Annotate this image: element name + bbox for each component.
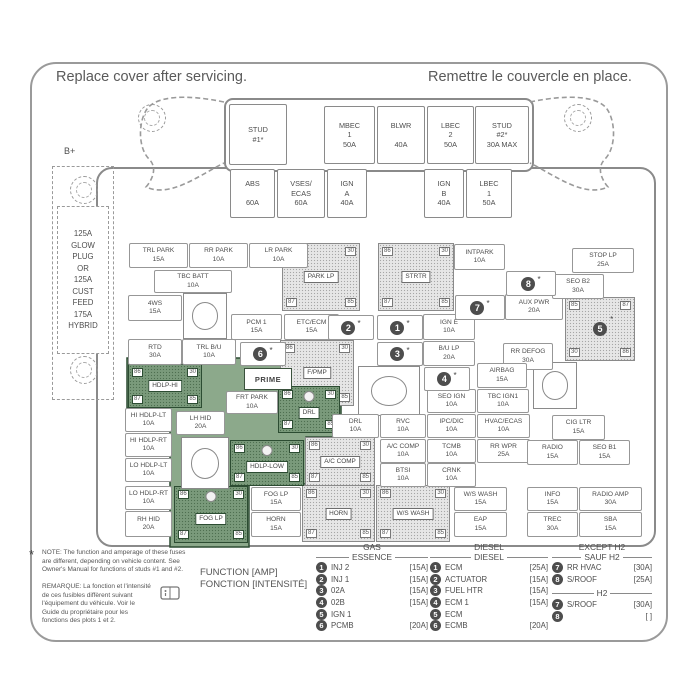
legend-column-h2: EXCEPT H2SAUF H27RR HVAC[30A]8S/ROOF[25A…: [552, 543, 652, 622]
maxi-fuse-abs-60a: ABS 60A: [230, 169, 275, 218]
legend-title: H2: [552, 589, 652, 599]
mounting-screw-icon: [138, 104, 166, 132]
fuse-hi-hdlp-lt: HI HDLP-LT10A: [125, 408, 172, 432]
legend-item-s-roof: 8S/ROOF[25A]: [552, 574, 652, 586]
relay-hdlp-hi: 86308785HDLP-HI: [128, 364, 202, 408]
callout-4: 4*: [424, 367, 470, 391]
fuse-4ws: 4WS15A: [128, 295, 182, 321]
fuse-stop-lp: STOP LP25A: [572, 248, 634, 273]
legend-item-item: 8[ ]: [552, 610, 652, 622]
fuse-seo-ign: SEO IGN10A: [427, 389, 476, 413]
fuse-hi-hdlp-rt: HI HDLP-RT10A: [125, 433, 172, 457]
legend-item-inj-2: 1INJ 2[15A]: [316, 562, 428, 574]
fuse-tbc-ign1: TBC IGN110A: [477, 389, 529, 413]
note-text-french: REMARQUE: La fonction et l'intensité de …: [42, 583, 154, 626]
relay-callout-5: 858730865*: [565, 297, 635, 361]
fuse-rr-park: RR PARK10A: [189, 243, 248, 268]
fuse-fog-lp: FOG LP15A: [251, 487, 301, 511]
maxi-fuse-stud-2-30a-max: STUD #2* 30A MAX: [475, 106, 529, 164]
callout-7: 7*: [455, 295, 505, 320]
legend-item-02a: 302A[15A]: [316, 585, 428, 597]
owners-manual-book-icon: [160, 586, 180, 601]
relay-socket: [181, 437, 229, 489]
maxi-fuse-lbec-1-50a: LBEC 1 50A: [466, 169, 512, 218]
relay-socket: [358, 366, 420, 416]
legend-item-ecm: 1ECM[25A]: [430, 562, 548, 574]
legend-item-inj-1: 2INJ 1[15A]: [316, 574, 428, 586]
prime-label: PRIME: [244, 368, 292, 390]
maxi-fuse-lbec-2-50a: LBEC 2 50A: [427, 106, 474, 164]
relay-a-c-comp: 86308785A/C COMP: [305, 437, 375, 486]
callout-6: 6*: [240, 342, 286, 366]
fuse-trl-b-u: TRL B/U10A: [182, 339, 236, 365]
callout-2: 2*: [328, 315, 374, 340]
fonction-intensite-label: FONCTION [INTENSITÉ]: [200, 579, 307, 590]
fuse-airbag: AIRBAG15A: [477, 363, 527, 388]
note-asterisk: *: [29, 547, 34, 562]
legend-title: ESSENCE: [316, 553, 428, 563]
fuse-seo-b1: SEO B115A: [579, 440, 630, 465]
callout-8: 8*: [506, 271, 556, 296]
fuse-b-u-lp: B/U LP20A: [423, 341, 475, 366]
maxi-fuse-ign-b-40a: IGN B 40A: [424, 169, 464, 218]
b-plus-label: B+: [64, 146, 75, 156]
legend-item-rr-hvac: 7RR HVAC[30A]: [552, 562, 652, 574]
fuse-radio: RADIO15A: [527, 440, 578, 465]
fuse-ipc-dic: IPC/DIC10A: [427, 414, 476, 438]
fuse-eap: EAP15A: [454, 512, 507, 537]
fuse-rh-hid: RH HID20A: [125, 511, 172, 537]
maxi-fuse-vses-ecas-60a: VSES/ ECAS 60A: [277, 169, 325, 218]
fuse-btsi: BTSI10A: [380, 463, 426, 487]
relay-horn: 86308785HORN: [302, 485, 375, 542]
maxi-fuse-blwr-40a: BLWR 40A: [377, 106, 425, 164]
relay-w-s-wash: 86308785W/S WASH: [376, 485, 450, 542]
fuse-intpark: INTPARK10A: [454, 244, 505, 270]
fuse-tcmb: TCMB10A: [427, 439, 476, 463]
callout-1: 1*: [377, 315, 423, 340]
fuse-lo-hdlp-lt: LO HDLP-LT10A: [125, 458, 172, 482]
fuse-pcm-1: PCM 115A: [231, 314, 282, 340]
legend-item-s-roof: 7S/ROOF[30A]: [552, 599, 652, 611]
glow-plug-fuse-label: 125A GLOW PLUG OR 125A CUST FEED 175A HY…: [57, 206, 109, 354]
legend-item-ign-1: 5IGN 1: [316, 608, 428, 620]
fuse-w-s-wash: W/S WASH15A: [454, 487, 507, 511]
fuse-rtd: RTD30A: [128, 339, 182, 365]
maxi-fuse-stud-1: STUD #1*: [229, 104, 287, 165]
fuse-lo-hdlp-rt: LO HDLP-RT10A: [125, 486, 172, 510]
relay-drl: 86308785DRL: [278, 386, 340, 433]
fuse-rvc: RVC10A: [380, 414, 426, 438]
function-amp-label: FUNCTION [AMP]: [200, 567, 278, 578]
legend-item-pcmb: 6PCMB[20A]: [316, 620, 428, 632]
fuse-lh-hid: LH HID20A: [176, 411, 225, 435]
fuse-tbc-batt: TBC BATT10A: [154, 270, 232, 293]
maxi-fuse-mbec-1-50a: MBEC 1 50A: [324, 106, 375, 164]
legend-item-ecm: 5ECM: [430, 608, 548, 620]
relay-hdlp-low: 86308785HDLP-LOW: [230, 440, 304, 486]
legend-item-ecmb: 6ECMB[20A]: [430, 620, 548, 632]
note-text-english: NOTE: The function and amperage of these…: [42, 549, 194, 575]
relay-fog-lp: 86308785FOG LP: [174, 486, 248, 543]
legend-title: SAUF H2: [552, 553, 652, 563]
legend-item-02b: 402B[15A]: [316, 597, 428, 609]
fuse-a-c-comp: A/C COMP10A: [380, 439, 426, 463]
fuse-info: INFO15A: [527, 487, 578, 511]
fuse-trl-park: TRL PARK15A: [129, 243, 188, 268]
header-text-french: Remettre le couvercle en place.: [428, 69, 632, 85]
fuse-cig-ltr: CIG LTR15A: [552, 415, 605, 440]
callout-3: 3*: [377, 342, 423, 366]
fuse-trec: TREC30A: [527, 512, 578, 537]
fuse-lr-park: LR PARK10A: [249, 243, 308, 268]
fuse-crnk: CRNK10A: [427, 463, 476, 487]
fuse-horn: HORN15A: [251, 512, 301, 537]
legend-item-fuel-htr: 3FUEL HTR[15A]: [430, 585, 548, 597]
mounting-screw-icon: [564, 104, 592, 132]
fuse-rr-wpr: RR WPR25A: [477, 439, 530, 463]
fuse-hvac-ecas: HVAC/ECAS10A: [477, 414, 530, 438]
relay-strtr: 86308785STRTR: [378, 243, 454, 311]
legend-title: DIESEL: [430, 553, 548, 563]
fuse-seo-b2: SEO B230A: [552, 274, 604, 299]
legend-item-actuator: 2ACTUATOR[15A]: [430, 574, 548, 586]
maxi-fuse-ign-a-40a: IGN A 40A: [327, 169, 367, 218]
legend-item-ecm-1: 4ECM 1[15A]: [430, 597, 548, 609]
header-text-english: Replace cover after servicing.: [56, 69, 247, 85]
legend-column-diesel: DIESELDIESEL1ECM[25A]2ACTUATOR[15A]3FUEL…: [430, 543, 548, 632]
relay-socket: [183, 293, 227, 339]
fuse-sba: SBA15A: [579, 512, 642, 537]
fuse-frt-park: FRT PARK10A: [226, 391, 278, 414]
legend-column-gas: GASESSENCE1INJ 2[15A]2INJ 1[15A]302A[15A…: [316, 543, 428, 632]
fuse-drl: DRL10A: [332, 414, 379, 438]
fuse-radio-amp: RADIO AMP30A: [579, 487, 642, 511]
